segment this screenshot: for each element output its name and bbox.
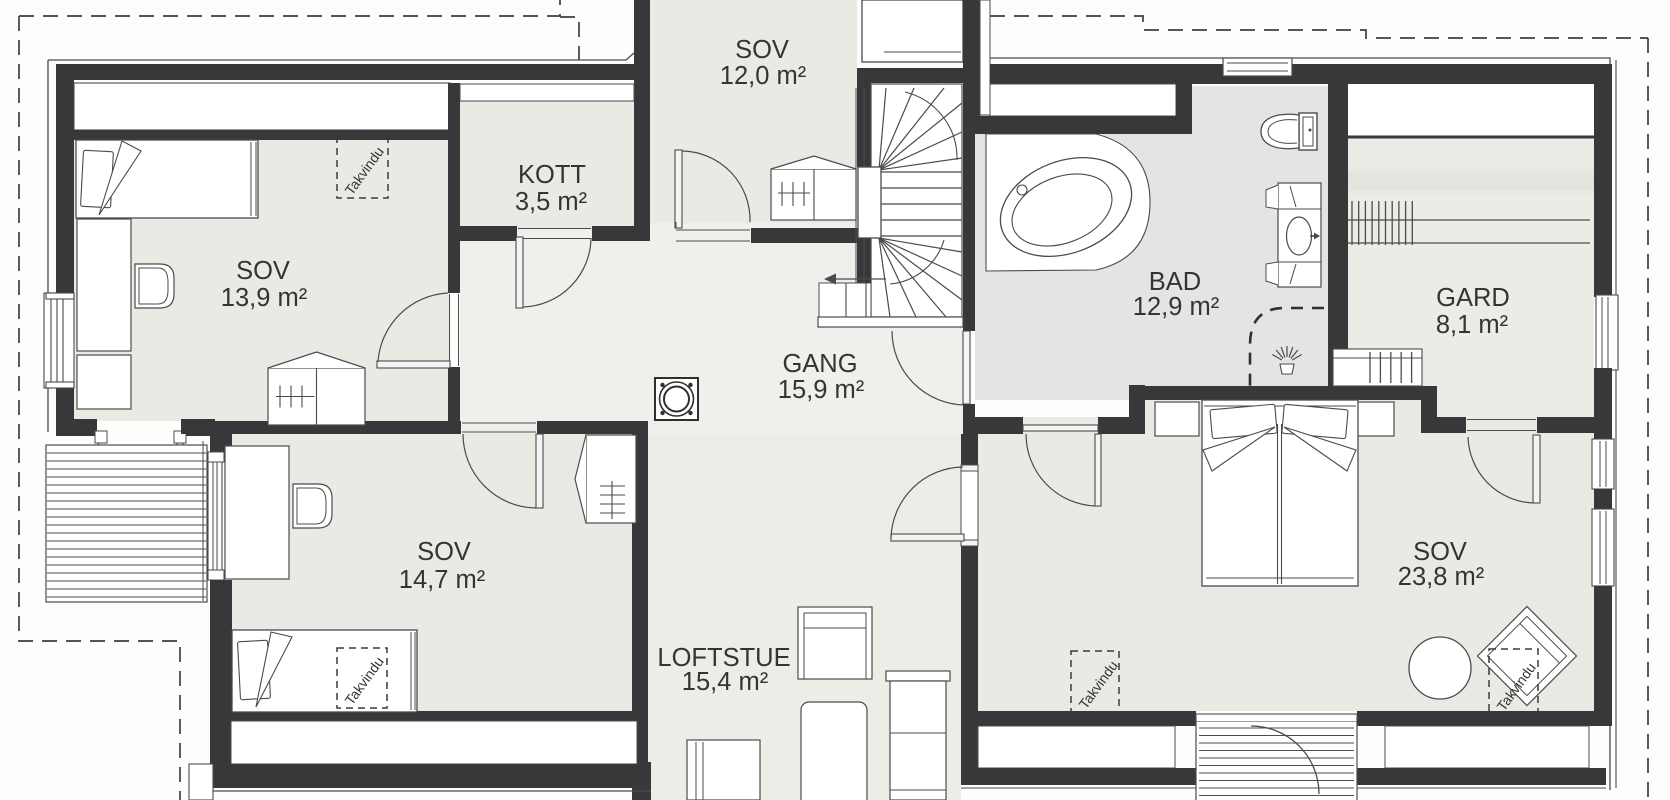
svg-text:8,1 m²: 8,1 m² xyxy=(1436,311,1508,339)
svg-text:SOV: SOV xyxy=(735,36,789,64)
svg-text:KOTT: KOTT xyxy=(518,161,586,189)
svg-text:14,7 m²: 14,7 m² xyxy=(399,566,485,594)
svg-text:GANG: GANG xyxy=(782,350,857,378)
svg-text:23,8 m²: 23,8 m² xyxy=(1398,563,1484,591)
svg-text:BAD: BAD xyxy=(1149,268,1201,296)
svg-text:15,4 m²: 15,4 m² xyxy=(682,668,768,696)
svg-text:12,0 m²: 12,0 m² xyxy=(720,62,806,90)
svg-text:3,5 m²: 3,5 m² xyxy=(515,188,587,216)
svg-text:12,9 m²: 12,9 m² xyxy=(1133,293,1219,321)
svg-text:15,9 m²: 15,9 m² xyxy=(778,376,864,404)
svg-text:13,9 m²: 13,9 m² xyxy=(221,284,307,312)
svg-text:SOV: SOV xyxy=(417,538,471,566)
svg-text:GARD: GARD xyxy=(1436,284,1510,312)
svg-text:SOV: SOV xyxy=(236,257,290,285)
svg-text:SOV: SOV xyxy=(1413,538,1467,566)
